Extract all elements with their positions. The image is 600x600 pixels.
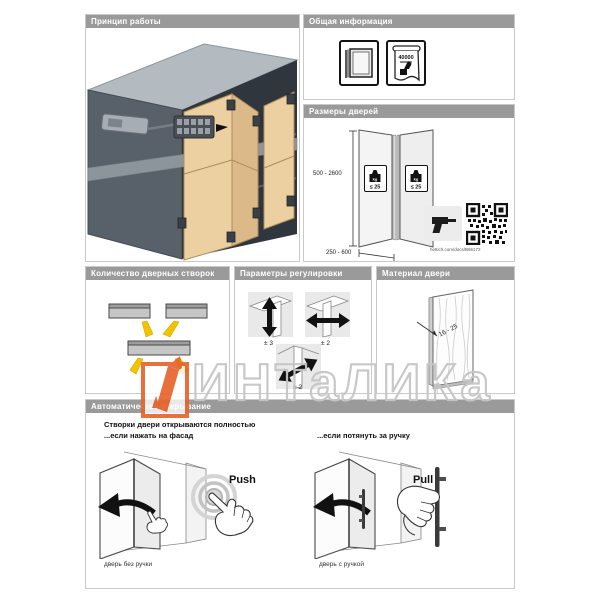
door-width-range: 250 - 600 xyxy=(326,250,351,256)
caption-no-handle: дверь без ручки xyxy=(104,561,152,568)
cabinet-illustration xyxy=(86,28,299,261)
statement-line2: ...если нажать на фасад xyxy=(104,431,193,440)
panel-door-sizes: Размеры дверей 500 - 2600 250 - 600 xyxy=(303,104,515,262)
material-diagram: 16 - 25 xyxy=(377,280,514,393)
adjust-side-diagram xyxy=(305,292,350,337)
catalog-icon xyxy=(339,40,379,86)
adjust-vertical-value: ± 3 xyxy=(264,340,273,347)
panel-material: Материал двери 16 - 25 xyxy=(376,266,515,394)
svg-text:≤ 25: ≤ 25 xyxy=(411,185,422,191)
panel-auto-open-title: Автоматическое открывание xyxy=(86,400,514,413)
panel-material-title: Материал двери xyxy=(377,267,514,280)
push-hand-icon xyxy=(201,489,263,547)
panel-principle: Принцип работы xyxy=(85,14,300,262)
panel-general-info-title: Общая информация xyxy=(304,15,514,28)
instruction-sheet: Принцип работы xyxy=(0,0,600,600)
panel-leaf-count-title: Количество дверных створок xyxy=(86,267,229,280)
weight-badge-left: kg ≤ 25 xyxy=(364,165,387,192)
leaf-count-diagram xyxy=(86,280,229,393)
durability-certificate-icon: 40000 xyxy=(386,40,426,86)
weight-limit: ≤ 25 xyxy=(370,185,381,191)
panel-adjustment-title: Параметры регулировки xyxy=(235,267,371,280)
weight-unit: kg xyxy=(373,177,378,182)
drill-icon xyxy=(424,206,462,241)
doc-link: hettich.com/docs/B66172 xyxy=(430,247,481,252)
adjust-depth-value: ± 2 xyxy=(293,384,302,391)
adjust-side-value: ± 2 xyxy=(321,340,330,347)
adjustment-diagrams: ± 3 ± 2 ± 2 xyxy=(235,280,371,393)
door-height-range: 500 - 2600 xyxy=(313,171,342,177)
panel-adjustment: Параметры регулировки xyxy=(234,266,372,394)
svg-text:kg: kg xyxy=(414,177,419,182)
qr-code xyxy=(466,203,508,245)
yellow-arrows-bottom xyxy=(130,358,188,374)
push-label: Push xyxy=(229,474,256,486)
cabinet-svg xyxy=(86,28,299,261)
door-sizes-diagram: 500 - 2600 250 - 600 kg ≤ 25 kg ≤ 25 xyxy=(304,118,514,261)
yellow-arrows-top xyxy=(142,321,179,337)
statement-line1: Створки двери открываются полностью xyxy=(104,420,255,429)
statement-right: ...если потянуть за ручку xyxy=(317,431,410,440)
durability-value: 40000 xyxy=(398,55,413,61)
panel-door-sizes-title: Размеры дверей xyxy=(304,105,514,118)
panel-general-info: Общая информация 40000 xyxy=(303,14,515,100)
caption-with-handle: дверь с ручкой xyxy=(319,561,364,568)
pull-label: Pull xyxy=(413,474,433,486)
adjust-depth-diagram xyxy=(275,344,321,389)
weight-badge-right: kg ≤ 25 xyxy=(405,165,428,192)
panel-principle-title: Принцип работы xyxy=(86,15,299,28)
panel-auto-open: Автоматическое открывание Створки двери … xyxy=(85,399,515,589)
panel-leaf-count: Количество дверных створок xyxy=(85,266,230,394)
adjust-vertical-diagram xyxy=(248,292,293,337)
